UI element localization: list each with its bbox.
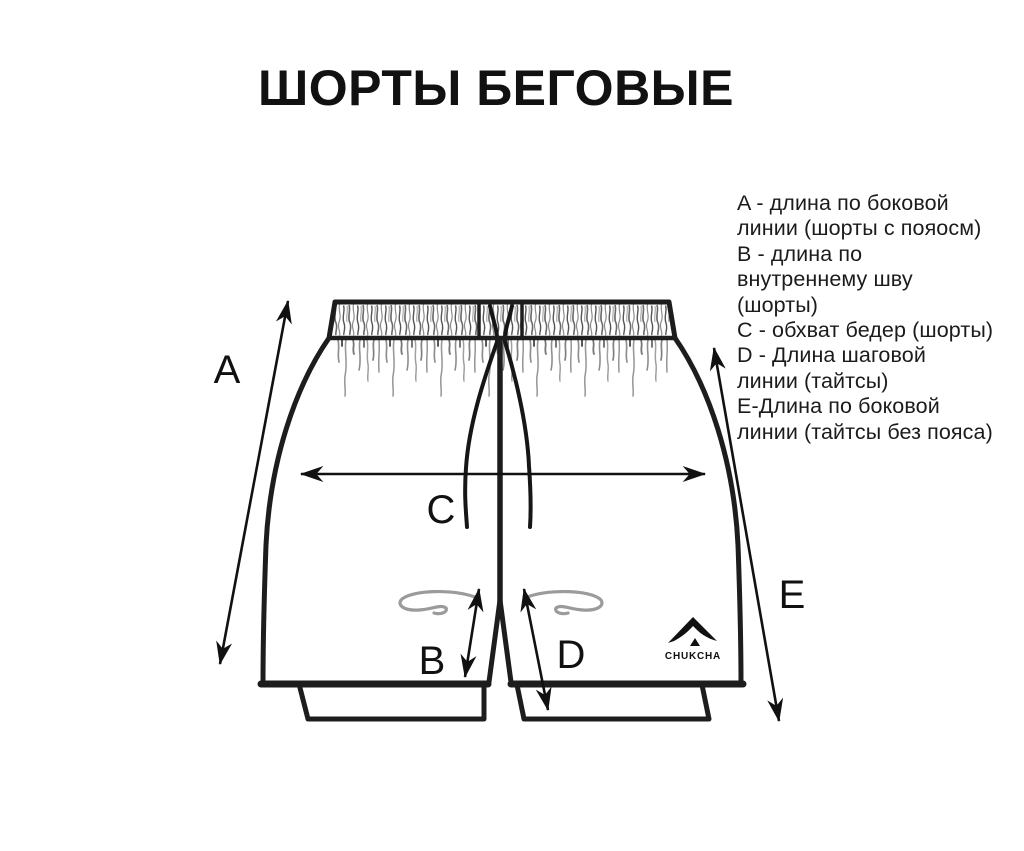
measure-label-b: B [419, 639, 446, 683]
measure-label-d: D [557, 633, 586, 677]
measure-label-c: C [427, 488, 456, 532]
waistband-elastic-texture [333, 304, 671, 336]
measure-label-a: A [214, 348, 241, 392]
measure-label-e: E [779, 573, 806, 617]
shorts-diagram: CHUKCHA A C B D E [0, 0, 1024, 851]
size-chart-page: { "title": "ШОРТЫ БЕГОВЫЕ", "colors": { … [0, 0, 1024, 851]
logo-text: CHUKCHA [665, 651, 721, 662]
